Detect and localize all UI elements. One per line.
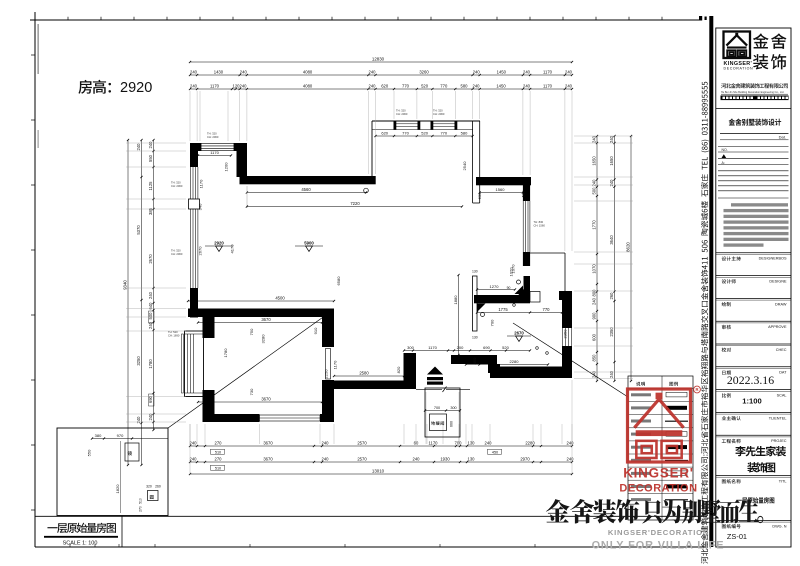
svg-text:7220: 7220 (350, 201, 360, 206)
svg-text:Dat.: Dat. (779, 135, 786, 140)
svg-text:690: 690 (483, 345, 490, 350)
svg-text:270: 270 (215, 440, 223, 445)
svg-text:240: 240 (190, 69, 198, 74)
svg-text:3250: 3250 (136, 356, 141, 366)
svg-text:2350: 2350 (563, 329, 568, 339)
svg-text:TH: 320: TH: 320 (171, 181, 181, 185)
svg-text:910: 910 (313, 327, 318, 334)
svg-text:TLIENTEL: TLIENTEL (769, 416, 787, 420)
svg-text:DESIGNERBOS: DESIGNERBOS (759, 257, 787, 261)
svg-text:260: 260 (609, 292, 614, 300)
svg-text:340: 340 (198, 203, 203, 210)
svg-text:240: 240 (591, 297, 596, 305)
svg-text:1170: 1170 (199, 179, 204, 188)
svg-text:4500: 4500 (275, 295, 285, 300)
svg-text:510: 510 (139, 498, 143, 504)
svg-text:3670: 3670 (263, 440, 273, 445)
svg-text:SCALE 1: 100: SCALE 1: 100 (63, 541, 98, 547)
svg-text:500: 500 (521, 190, 526, 197)
svg-text:580: 580 (461, 130, 468, 135)
svg-text:1170: 1170 (333, 360, 338, 369)
svg-text:240: 240 (240, 69, 248, 74)
svg-text:130: 130 (468, 456, 476, 461)
svg-text:240: 240 (190, 440, 198, 445)
svg-text:ONLY FOR VILLA LIFE: ONLY FOR VILLA LIFE (592, 540, 725, 552)
svg-text:700: 700 (434, 406, 440, 410)
svg-text:550: 550 (87, 449, 92, 456)
svg-text:1070: 1070 (511, 264, 516, 274)
svg-text:APPROVE: APPROVE (768, 325, 787, 329)
svg-text:240: 240 (473, 83, 481, 88)
svg-text:770: 770 (543, 307, 551, 312)
svg-text:CH: 1560: CH: 1560 (534, 224, 546, 228)
svg-text:1820: 1820 (115, 484, 120, 494)
svg-text:3280: 3280 (261, 334, 266, 344)
svg-text:240: 240 (591, 135, 596, 143)
svg-text:1170: 1170 (428, 440, 438, 445)
svg-text:820: 820 (396, 366, 401, 373)
svg-text:5900: 5900 (304, 240, 314, 245)
svg-text:520: 520 (421, 83, 429, 88)
svg-text:90: 90 (507, 286, 511, 290)
svg-text:CH: 2060: CH: 2060 (171, 184, 183, 188)
svg-text:PROJEC: PROJEC (771, 439, 787, 443)
svg-text:620: 620 (381, 130, 388, 135)
svg-text:1070: 1070 (591, 264, 596, 274)
svg-text:240: 240 (240, 83, 248, 88)
svg-text:6580: 6580 (336, 276, 341, 286)
svg-text:KINGSER'DECORATION: KINGSER'DECORATION (608, 528, 709, 537)
svg-text:770: 770 (402, 83, 410, 88)
svg-text:320: 320 (146, 485, 152, 489)
svg-text:130: 130 (472, 336, 478, 340)
svg-text:DECORATION: DECORATION (619, 483, 697, 495)
svg-text:SCAL: SCAL (777, 394, 787, 398)
svg-text:1780: 1780 (223, 348, 228, 358)
svg-text:TH: 320: TH: 320 (171, 249, 181, 253)
svg-text:CH: 2060: CH: 2060 (171, 252, 183, 256)
svg-text:DRAW: DRAW (775, 302, 787, 306)
svg-text:R: R (695, 387, 698, 392)
svg-text:60: 60 (414, 440, 419, 445)
svg-text:240: 240 (523, 69, 531, 74)
svg-text:DAT: DAT (779, 371, 787, 375)
svg-text:1170: 1170 (428, 345, 437, 350)
svg-text:2250: 2250 (324, 369, 329, 379)
svg-text:240: 240 (609, 370, 614, 378)
svg-text:ZS-01: ZS-01 (727, 532, 747, 541)
svg-text:240: 240 (565, 69, 573, 74)
svg-text:DWG. N: DWG. N (772, 524, 786, 528)
svg-text:240: 240 (369, 83, 377, 88)
svg-text:500: 500 (591, 187, 596, 195)
svg-text:1650: 1650 (591, 156, 596, 166)
svg-text:A:: A: (722, 161, 725, 165)
svg-text:CH: 2060: CH: 2060 (207, 135, 219, 139)
svg-text:1930: 1930 (440, 456, 450, 461)
svg-text:TH: 320: TH: 320 (207, 132, 217, 136)
svg-text:240: 240 (369, 69, 377, 74)
svg-text:510: 510 (215, 467, 221, 471)
svg-text:2920: 2920 (120, 80, 152, 96)
svg-text:240: 240 (322, 440, 330, 445)
svg-text:240: 240 (136, 416, 141, 424)
svg-text:2280: 2280 (510, 359, 520, 364)
svg-text:TITL: TITL (779, 479, 787, 483)
svg-text:TH: 830: TH: 830 (534, 220, 544, 224)
svg-text:1:100: 1:100 (742, 397, 761, 406)
svg-text:3670: 3670 (261, 317, 271, 322)
svg-text:380: 380 (95, 433, 102, 438)
svg-text:240: 240 (148, 141, 153, 149)
svg-text:CH: 2060: CH: 2060 (396, 112, 408, 116)
svg-text:240: 240 (413, 456, 421, 461)
svg-text:2570: 2570 (357, 456, 367, 461)
svg-text:KINGSER': KINGSER' (623, 466, 694, 481)
svg-text:385: 385 (148, 207, 153, 215)
svg-text:130: 130 (472, 270, 478, 274)
svg-text:CH: 1690: CH: 1690 (168, 334, 180, 338)
svg-text:700: 700 (490, 319, 495, 326)
svg-text:2970: 2970 (520, 456, 530, 461)
svg-text:2670: 2670 (148, 254, 153, 264)
svg-text:4080: 4080 (303, 83, 313, 88)
svg-text:240: 240 (190, 456, 198, 461)
svg-text:DECORATION: DECORATION (724, 67, 754, 71)
svg-text:3260: 3260 (419, 69, 429, 74)
svg-text:CH: 2060: CH: 2060 (433, 112, 445, 116)
svg-text:600: 600 (591, 333, 596, 341)
svg-text:8620: 8620 (625, 242, 630, 252)
svg-text:1125: 1125 (148, 181, 153, 191)
svg-text:770: 770 (440, 83, 448, 88)
svg-text:240: 240 (485, 440, 493, 445)
svg-text:270: 270 (139, 506, 143, 512)
svg-text:NO.: NO. (722, 148, 728, 152)
svg-text:270: 270 (215, 456, 223, 461)
svg-text:260: 260 (155, 485, 161, 489)
svg-text:1880: 1880 (453, 295, 458, 305)
svg-text:240: 240 (567, 440, 575, 445)
svg-text:2280: 2280 (525, 440, 535, 445)
svg-text:1170: 1170 (543, 69, 553, 74)
svg-text:620: 620 (381, 83, 389, 88)
svg-text:240: 240 (565, 83, 573, 88)
svg-text:13010: 13010 (372, 468, 385, 473)
svg-text:2022.3.16: 2022.3.16 (727, 373, 774, 387)
svg-text:1270: 1270 (490, 284, 500, 289)
svg-text:300: 300 (450, 406, 456, 410)
svg-text:510: 510 (215, 451, 221, 455)
svg-text:1770: 1770 (591, 220, 596, 230)
svg-text:200: 200 (457, 345, 464, 350)
svg-text:DESIGNE: DESIGNE (769, 280, 787, 284)
svg-text:900: 900 (591, 312, 596, 320)
svg-text:450: 450 (472, 357, 477, 364)
svg-text:1170: 1170 (543, 83, 553, 88)
svg-text:660: 660 (450, 421, 454, 427)
svg-text:1170: 1170 (210, 83, 220, 88)
svg-text:300: 300 (407, 345, 414, 350)
svg-text:2670: 2670 (198, 246, 203, 256)
svg-text:2350: 2350 (609, 327, 614, 337)
svg-text:TH: 520: TH: 520 (168, 330, 178, 334)
svg-text:2670: 2670 (514, 330, 524, 335)
svg-text:240: 240 (609, 179, 614, 187)
svg-text:520: 520 (502, 345, 509, 350)
svg-text:3640: 3640 (609, 235, 614, 245)
svg-text:240: 240 (148, 291, 153, 299)
svg-text:240: 240 (190, 83, 198, 88)
svg-text:3670: 3670 (261, 396, 271, 401)
svg-text:12830: 12830 (372, 56, 385, 61)
svg-text:2540: 2540 (462, 161, 467, 171)
svg-text:700: 700 (455, 440, 463, 445)
svg-text:4080: 4080 (303, 69, 313, 74)
svg-text:1430: 1430 (214, 69, 224, 74)
svg-text:240: 240 (591, 370, 596, 378)
svg-text:2570: 2570 (357, 440, 367, 445)
svg-text:CHEC: CHEC (776, 348, 787, 352)
svg-text:He Bei Jin She Building Decora: He Bei Jin She Building Decoration Engin… (721, 91, 784, 94)
svg-text:4560: 4560 (301, 187, 311, 192)
svg-text:750: 750 (249, 328, 254, 335)
svg-text:770: 770 (402, 130, 409, 135)
svg-text:1775: 1775 (498, 307, 508, 312)
svg-text:TH: 320: TH: 320 (433, 109, 443, 113)
svg-text:5370: 5370 (136, 225, 141, 235)
svg-text:1450: 1450 (496, 83, 506, 88)
svg-text:2920: 2920 (214, 240, 224, 245)
svg-text:9340: 9340 (122, 280, 127, 290)
svg-text:240: 240 (609, 135, 614, 143)
svg-text:240: 240 (523, 83, 531, 88)
svg-text:520: 520 (421, 130, 428, 135)
svg-text:2580: 2580 (359, 370, 369, 375)
svg-text:4170: 4170 (230, 244, 235, 254)
svg-text:580: 580 (461, 83, 469, 88)
svg-text:850: 850 (591, 354, 596, 362)
svg-text:TH: 320: TH: 320 (396, 109, 406, 113)
svg-text:550: 550 (148, 154, 153, 162)
svg-text:800: 800 (591, 289, 596, 297)
svg-text:240: 240 (473, 69, 481, 74)
svg-text:1200: 1200 (224, 162, 229, 172)
svg-text:1780: 1780 (148, 359, 153, 369)
svg-text:240: 240 (567, 456, 575, 461)
svg-text:1650: 1650 (609, 156, 614, 166)
svg-text:3670: 3670 (263, 456, 273, 461)
svg-text:1170: 1170 (210, 150, 219, 155)
svg-text:240: 240 (322, 456, 330, 461)
svg-text:1560: 1560 (496, 187, 506, 192)
svg-text:130: 130 (468, 440, 476, 445)
svg-text:1450: 1450 (497, 69, 507, 74)
svg-text:240: 240 (136, 143, 141, 151)
svg-text:450: 450 (492, 451, 498, 455)
svg-text:240: 240 (591, 179, 596, 187)
svg-text:730: 730 (249, 388, 254, 395)
svg-text:770: 770 (440, 130, 447, 135)
svg-text:970: 970 (117, 433, 124, 438)
